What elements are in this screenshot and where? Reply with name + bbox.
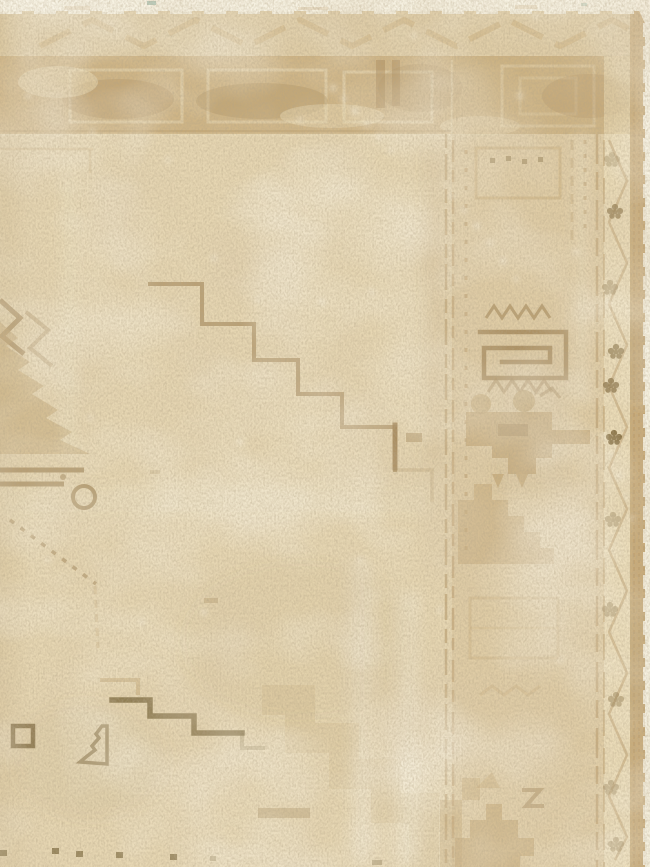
rug-photograph <box>0 0 650 867</box>
fabric-grain <box>0 0 650 867</box>
rug-photo-canvas <box>0 0 650 867</box>
